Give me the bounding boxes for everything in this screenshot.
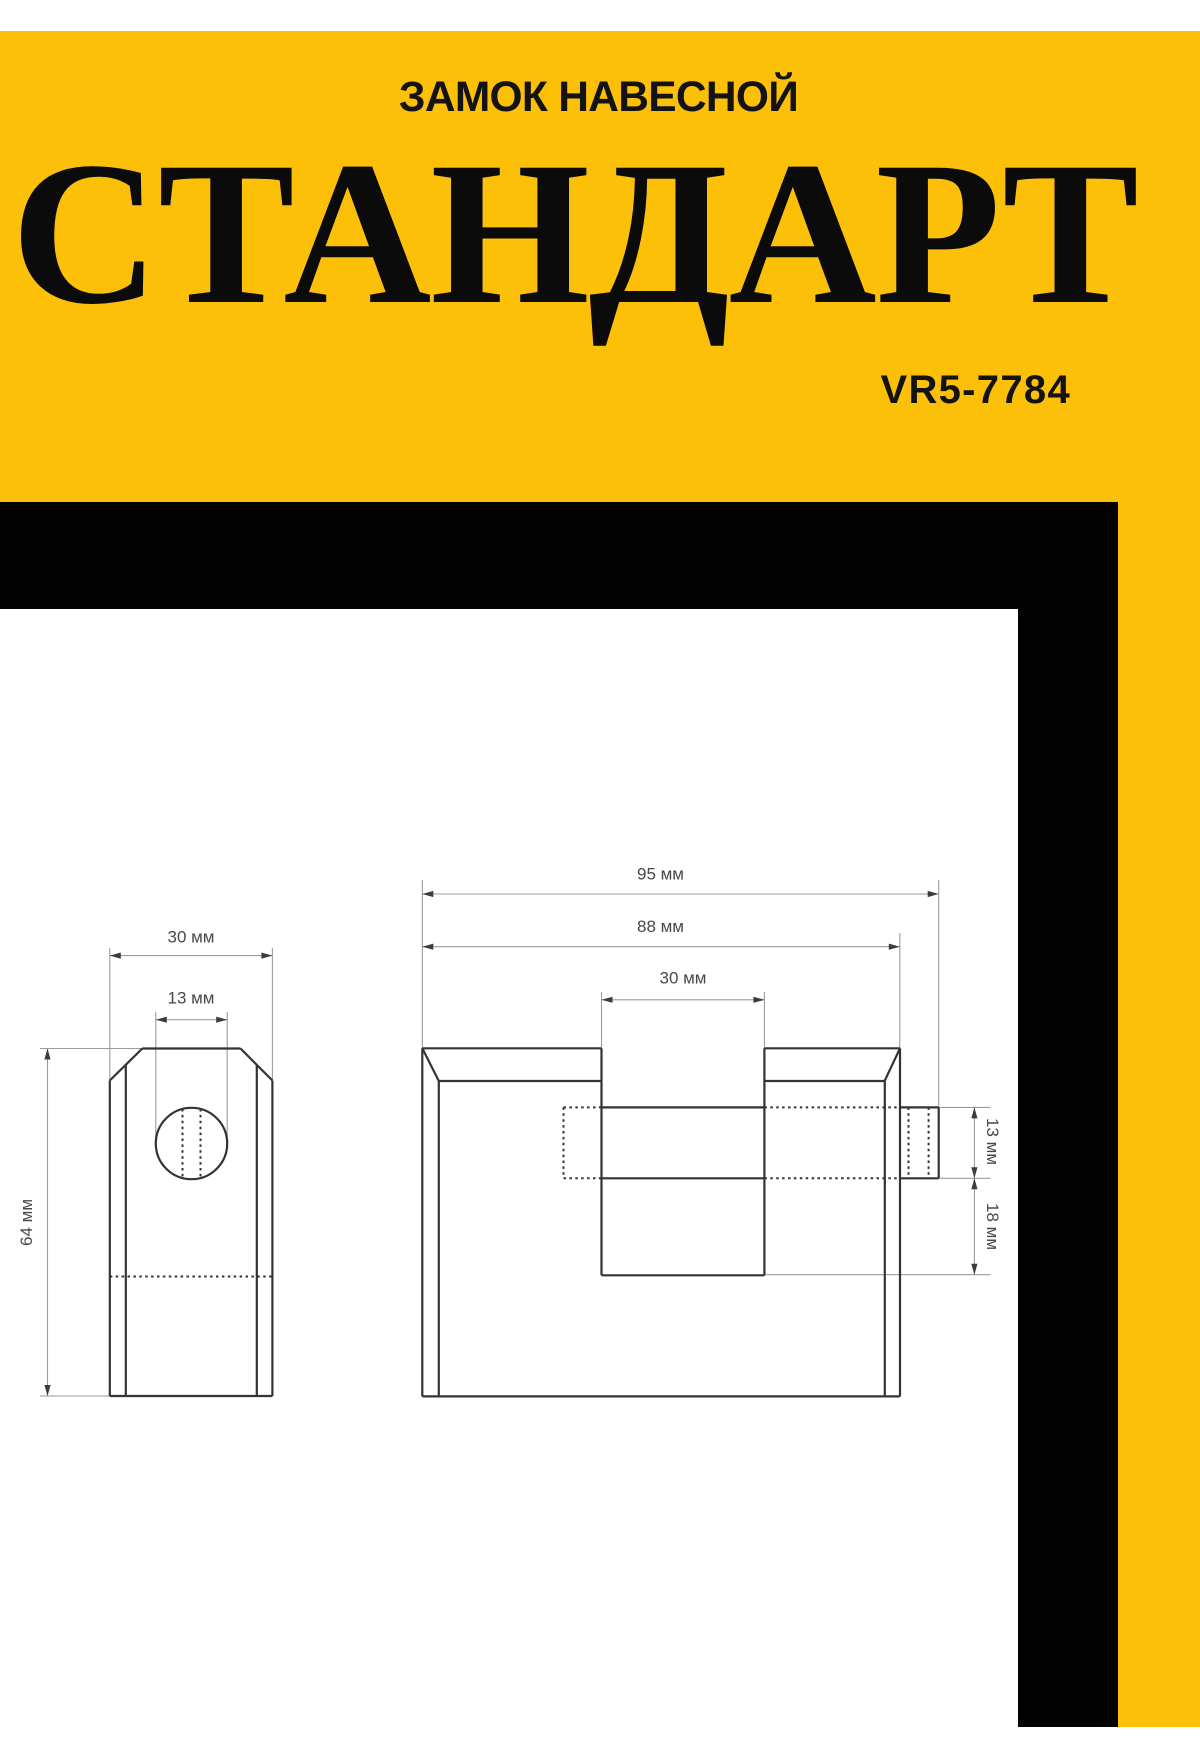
svg-text:64 мм: 64 мм (17, 1199, 36, 1246)
svg-text:13 мм: 13 мм (983, 1118, 1002, 1165)
svg-text:30 мм: 30 мм (167, 928, 214, 947)
svg-text:13 мм: 13 мм (167, 989, 214, 1008)
svg-text:95 мм: 95 мм (637, 865, 684, 884)
svg-text:30 мм: 30 мм (659, 969, 706, 988)
svg-text:18 мм: 18 мм (983, 1203, 1002, 1250)
svg-text:88 мм: 88 мм (637, 917, 684, 936)
